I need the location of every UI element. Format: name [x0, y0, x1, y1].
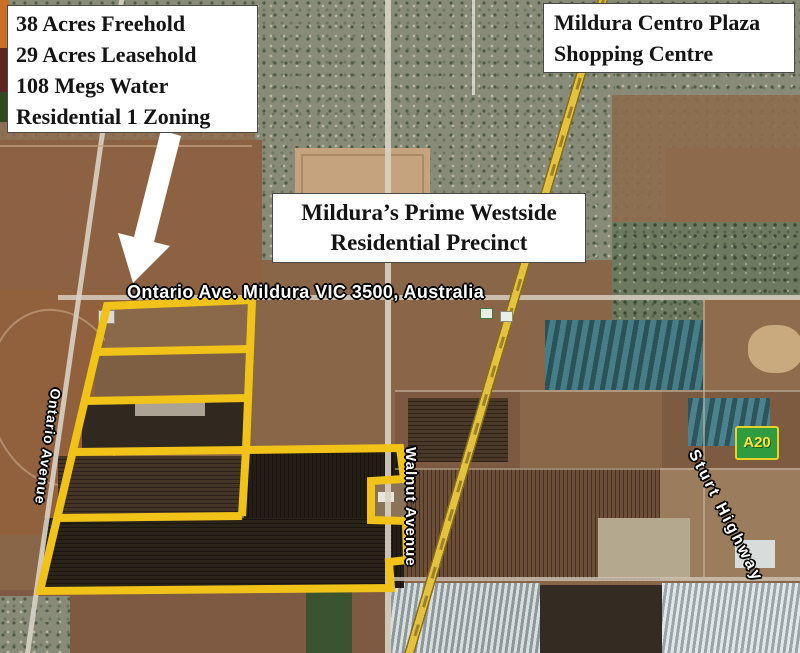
callout-line: Shopping Centre [554, 38, 794, 69]
callout-line: Residential 1 Zoning [16, 101, 257, 132]
address-placemark-label: Ontario Ave. Mildura VIC 3500, Australia [127, 282, 484, 303]
walnut-avenue-label: Walnut Avenue [402, 447, 419, 567]
callout-line: Mildura’s Prime Westside [273, 198, 585, 228]
route-shield-a20: A20 [735, 426, 779, 460]
callout-shopping-centre: Mildura Centro Plaza Shopping Centre [543, 3, 795, 73]
arrow-shape [118, 130, 181, 283]
callout-line: 38 Acres Freehold [16, 8, 257, 39]
callout-line: Residential Precinct [273, 228, 585, 258]
callout-line: Mildura Centro Plaza [554, 7, 794, 38]
callout-line: 108 Megs Water [16, 70, 257, 101]
callout-property-facts: 38 Acres Freehold 29 Acres Leasehold 108… [7, 5, 258, 133]
callout-line: 29 Acres Leasehold [16, 39, 257, 70]
aerial-map: Ontario Ave. Mildura VIC 3500, Australia… [0, 0, 800, 653]
callout-precinct: Mildura’s Prime Westside Residential Pre… [272, 193, 586, 263]
